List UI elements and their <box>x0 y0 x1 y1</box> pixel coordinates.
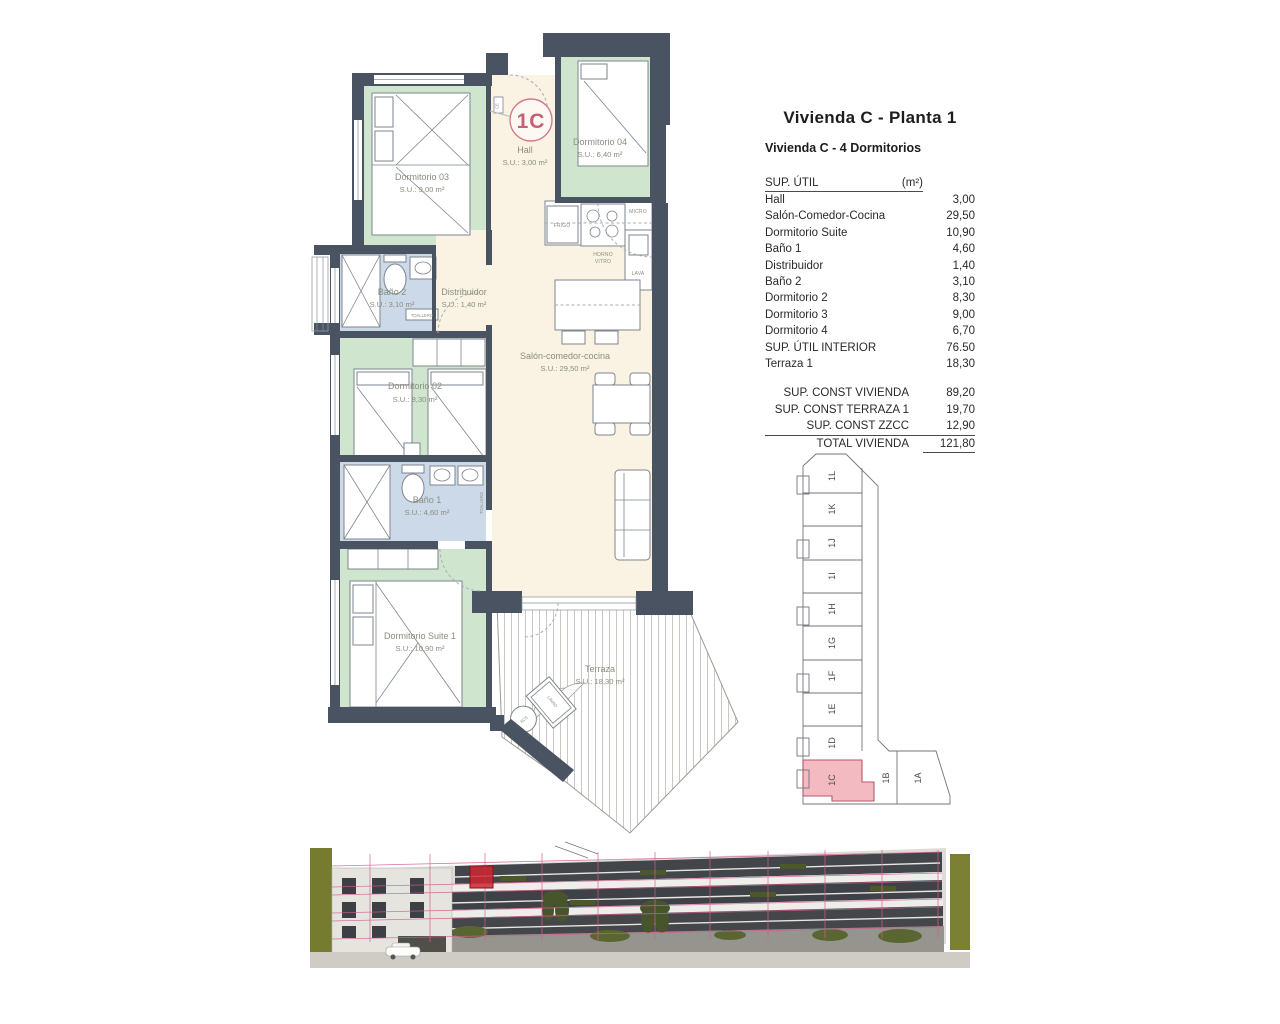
key-plan-unit: 1E <box>827 703 837 714</box>
key-plan-unit: 1A <box>913 772 923 783</box>
key-plan-unit: 1K <box>827 503 837 514</box>
floor-plan-drawing: ACS LAVAD <box>300 25 750 845</box>
key-plan-unit: 1F <box>827 670 837 681</box>
table-row: Terraza 118,30 <box>765 356 975 372</box>
toallero-bano2-label: TOALLERO <box>411 313 434 318</box>
label-terraza: Terraza <box>585 664 615 674</box>
plan-sheet: ACS LAVAD <box>0 0 1280 1024</box>
summary-row-total: TOTAL VIVIENDA121,80 <box>765 436 975 453</box>
area-table-header-unit: (m²) <box>902 177 923 189</box>
micro-label: MICRO <box>629 209 647 215</box>
page-subtitle: Vivienda C - 4 Dormitorios <box>765 141 975 155</box>
table-row: Distribuidor1,40 <box>765 258 975 274</box>
table-row: Baño 23,10 <box>765 274 975 290</box>
summary-row: SUP. CONST VIVIENDA89,20 <box>765 385 975 401</box>
table-row: SUP. ÚTIL INTERIOR76.50 <box>765 340 975 356</box>
svg-text:S.U.: 4,60 m²: S.U.: 4,60 m² <box>405 508 450 517</box>
key-plan: 1L 1K 1J 1I 1H 1G 1F 1E 1D 1C 1B 1A <box>790 452 960 817</box>
label-dormitorio-02: Dormitorio 02 <box>388 381 442 391</box>
unit-badge-label: 1C <box>517 110 546 133</box>
label-bano-2: Baño 2 <box>378 287 407 297</box>
key-plan-highlight-1c <box>803 760 874 801</box>
table-row: Dormitorio 39,00 <box>765 307 975 323</box>
label-dormitorio-03: Dormitorio 03 <box>395 172 449 182</box>
svg-text:S.U.: 8,30 m²: S.U.: 8,30 m² <box>393 395 438 404</box>
svg-text:S.U.: 10,90 m²: S.U.: 10,90 m² <box>396 644 445 653</box>
label-salon: Salón-comedor-cocina <box>520 351 610 361</box>
vegetation-left <box>310 848 332 952</box>
table-row: Dormitorio Suite10,90 <box>765 225 975 241</box>
area-table-header: SUP. ÚTIL (m²) <box>765 177 923 192</box>
svg-text:S.U.: 9,00 m²: S.U.: 9,00 m² <box>400 185 445 194</box>
key-plan-unit: 1J <box>827 538 837 548</box>
page-title: Vivienda C - Planta 1 <box>765 108 975 128</box>
area-table-header-label: SUP. ÚTIL <box>765 177 818 189</box>
key-plan-unit: 1G <box>827 637 837 649</box>
svg-text:S.U.: 29,50 m²: S.U.: 29,50 m² <box>541 364 590 373</box>
summary-row: SUP. CONST ZZCC12,90 <box>765 418 975 435</box>
vegetation-right <box>950 854 970 950</box>
toallero-bano1-label: TOALLERO <box>479 491 484 514</box>
label-bano-1: Baño 1 <box>413 495 442 505</box>
summary-row: SUP. CONST TERRAZA 119,70 <box>765 402 975 418</box>
horno-label: HORNO <box>593 252 613 258</box>
key-plan-unit-highlighted: 1C <box>827 774 837 786</box>
key-plan-unit: 1H <box>827 603 837 615</box>
svg-text:S.U.: 1,40 m²: S.U.: 1,40 m² <box>442 300 487 309</box>
svg-text:S.U.: 6,40 m²: S.U.: 6,40 m² <box>578 150 623 159</box>
summary-table: SUP. CONST VIVIENDA89,20 SUP. CONST TERR… <box>765 385 975 453</box>
ce-label: CE <box>495 103 500 109</box>
svg-text:VITRO: VITRO <box>595 259 611 265</box>
label-dormitorio-04: Dormitorio 04 <box>573 137 627 147</box>
building-elevation <box>310 840 970 968</box>
frigo-label: FRIGO <box>554 223 571 229</box>
svg-text:S.U.: 3,00 m²: S.U.: 3,00 m² <box>503 158 548 167</box>
key-plan-unit: 1B <box>881 772 891 783</box>
table-row: Dormitorio 28,30 <box>765 290 975 306</box>
info-panel: Vivienda C - Planta 1 Vivienda C - 4 Dor… <box>765 108 975 453</box>
lavavajillas-label: LAVA <box>632 271 645 277</box>
key-plan-unit: 1D <box>827 737 837 749</box>
table-row: Hall3,00 <box>765 192 975 208</box>
key-plan-unit: 1L <box>827 471 837 481</box>
area-table: Hall3,00 Salón-Comedor-Cocina29,50 Dormi… <box>765 192 975 372</box>
table-row: Dormitorio 46,70 <box>765 323 975 339</box>
table-row: Salón-Comedor-Cocina29,50 <box>765 208 975 224</box>
svg-text:S.U.: 18,30 m²: S.U.: 18,30 m² <box>576 677 625 686</box>
label-suite: Dormitorio Suite 1 <box>384 631 456 641</box>
table-row: Baño 14,60 <box>765 241 975 257</box>
svg-text:S.U.: 3,10 m²: S.U.: 3,10 m² <box>370 300 415 309</box>
key-plan-unit: 1I <box>827 572 837 580</box>
room-distribuidor <box>436 230 492 335</box>
label-distribuidor: Distribuidor <box>441 287 487 297</box>
label-hall: Hall <box>517 145 533 155</box>
highlighted-unit-marker <box>470 866 493 888</box>
